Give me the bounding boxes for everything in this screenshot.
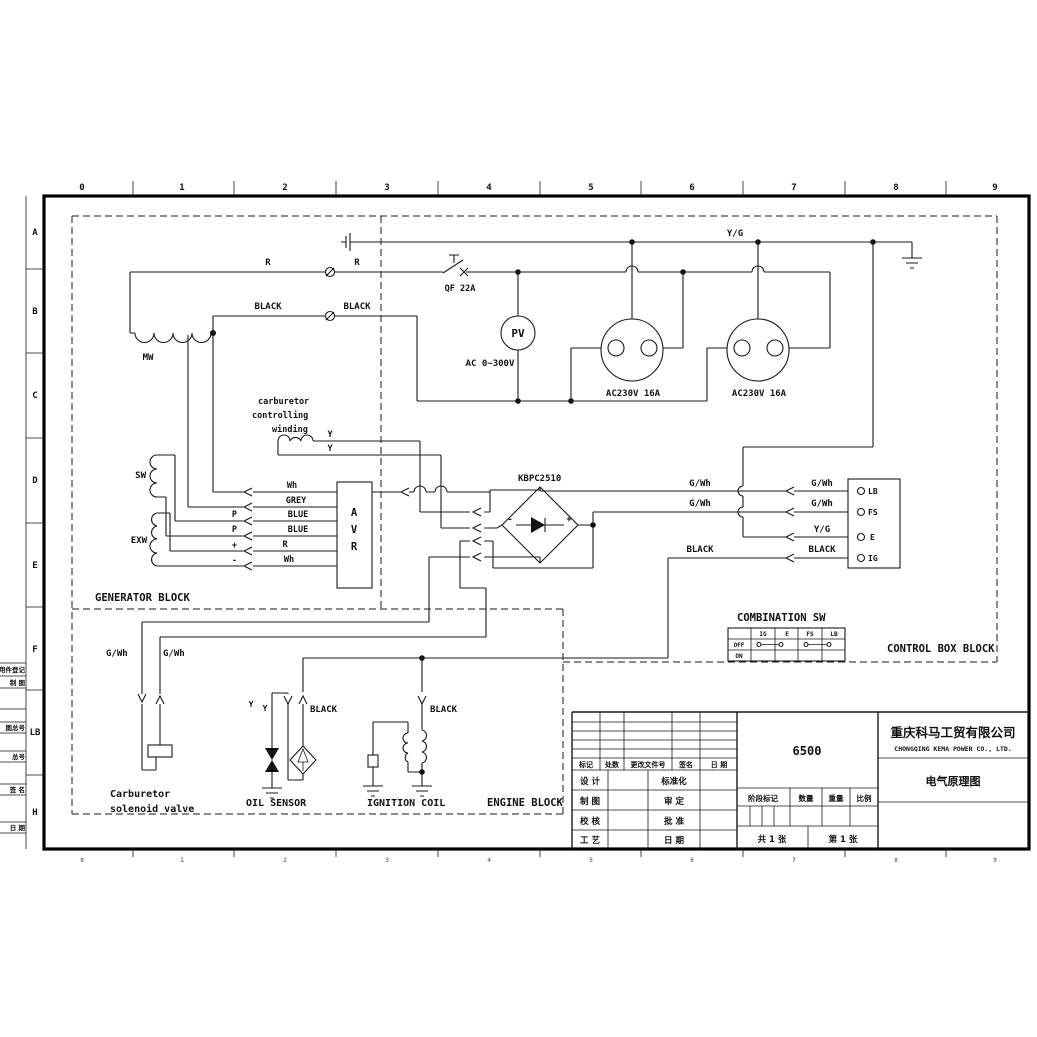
wire-label-gwh-3: G/Wh (689, 499, 711, 509)
wire-label-black-4: BLACK (808, 545, 836, 555)
sw-col-e: E (785, 631, 789, 638)
title-block: 标记 处数 更改文件号 签名 日 期 设 计 制 图 校 核 工 艺 标准化 审… (572, 712, 1029, 849)
connector-chevrons-kbpc (473, 508, 481, 561)
wire-label-gwh-2: G/Wh (811, 479, 833, 489)
avr-wire-wh-2: Wh (284, 555, 294, 565)
avr-wire-blue-2: BLUE (288, 525, 308, 535)
connector-chevron-down (138, 694, 146, 702)
wire-label-y-oil2: Y (263, 704, 268, 713)
ruler-top-7: 7 (791, 183, 796, 193)
avr-wire-wh-1: Wh (287, 481, 297, 491)
rev-header-1: 标记 (578, 760, 593, 769)
sheet-number: 第 1 张 (829, 834, 858, 845)
wire-label-black-oil: BLACK (310, 705, 338, 715)
combination-sw-table: IG E FS LB OFF ON (728, 628, 845, 661)
avr-term-minus: - (232, 556, 237, 566)
drawing-title: 电气原理图 (926, 774, 981, 788)
ruler-left-d: D (32, 476, 38, 486)
terminal-e: E (870, 533, 875, 542)
outlet-1 (601, 242, 663, 381)
wiring-top-bus (350, 239, 922, 268)
avr-term-p1: P (232, 510, 237, 520)
avr-term-p2: P (232, 525, 237, 535)
connector-chevrons-control (786, 487, 794, 562)
ruler-top-5: 5 (588, 183, 593, 193)
ruler-bottom-4: 4 (487, 857, 491, 864)
ruler-bottom-1: 1 (180, 857, 184, 864)
pv-range-label: AC 0~300V (466, 359, 515, 369)
ruler-bottom-8: 8 (894, 857, 898, 864)
wiring-live-line (130, 255, 830, 348)
margin-label-4: 总号 (12, 752, 26, 761)
ruler-left-a: A (32, 228, 38, 238)
avr-wires (188, 488, 337, 570)
oil-sensor (262, 658, 316, 798)
sign-row4-col1: 工 艺 (580, 835, 600, 846)
generator-block-label: GENERATOR BLOCK (95, 592, 191, 604)
sign-row1-col2: 标准化 (660, 776, 687, 787)
wire-label-black-2: BLACK (343, 302, 371, 312)
carb-winding-line1: carburetor (258, 397, 309, 407)
avr-output-wire (372, 486, 490, 496)
margin-label-2: 制 图 (10, 678, 26, 687)
breaker-qf-icon (443, 255, 468, 276)
margin-label-5: 签 名 (9, 785, 25, 794)
avr-box: A V R (337, 482, 372, 588)
schematic-page: 0 1 2 3 4 5 6 7 8 9 0 1 2 3 4 5 6 7 8 9 … (0, 0, 1037, 1037)
stage-header-2: 数量 (799, 793, 814, 803)
ruler-top-8: 8 (893, 183, 898, 193)
sheets-total: 共 1 张 (758, 834, 787, 845)
avr-wire-blue-1: BLUE (288, 510, 308, 520)
wire-label-black-3: BLACK (686, 545, 714, 555)
ignition-coil (363, 658, 432, 796)
model-number: 6500 (793, 744, 822, 758)
sw-winding (150, 455, 243, 536)
terminal-fs: FS (868, 508, 878, 517)
sign-row4-col2: 日 期 (664, 835, 684, 846)
connector-chevron-up (156, 696, 164, 704)
engine-block-label: ENGINE BLOCK (487, 797, 564, 809)
sw-col-ig: IG (759, 631, 767, 638)
ruler-left-c: C (32, 391, 37, 401)
ruler-top-1: 1 (179, 183, 184, 193)
sign-row3-col1: 校 核 (580, 816, 600, 827)
ruler-left-f: F (32, 645, 37, 655)
ruler-top-0: 0 (79, 183, 84, 193)
sw-row-off: OFF (734, 642, 745, 649)
kbpc-label: KBPC2510 (518, 474, 561, 484)
rev-header-2: 处数 (604, 760, 620, 769)
wire-label-gwh-eng2: G/Wh (163, 649, 185, 659)
spark-plug-icon (368, 755, 378, 767)
combination-sw-title: COMBINATION SW (737, 612, 826, 624)
wire-label-gwh-1: G/Wh (689, 479, 711, 489)
sign-row2-col1: 制 图 (580, 796, 600, 807)
ruler-bottom-9: 9 (993, 857, 997, 864)
ignition-coil-label: IGNITION COIL (367, 798, 445, 809)
ruler-left-e: E (32, 561, 37, 571)
breaker-label: QF 22A (445, 284, 476, 294)
schematic-canvas: 0 1 2 3 4 5 6 7 8 9 0 1 2 3 4 5 6 7 8 9 … (0, 0, 1037, 1037)
wire-label-yg-e: Y/G (814, 525, 830, 535)
diode-icon (265, 760, 279, 772)
ruler-left-b: B (32, 307, 38, 317)
wire-label-gwh-4: G/Wh (811, 499, 833, 509)
company-name-en: CHONGQING KEMA POWER CO., LTD. (894, 745, 1011, 753)
sw-col-fs: FS (806, 631, 814, 638)
wire-label-black-ign: BLACK (430, 705, 458, 715)
sw-row-on: ON (735, 653, 743, 660)
avr-letter-v: V (351, 524, 358, 536)
terminal-lb: LB (868, 487, 878, 496)
avr-letter-r: R (351, 541, 358, 553)
wire-label-gwh-eng1: G/Wh (106, 649, 128, 659)
solenoid-valve (138, 622, 172, 770)
ruler-left-h: H (32, 808, 37, 818)
terminal-box: LB FS E IG (848, 479, 900, 568)
connector-chevron (401, 488, 409, 496)
control-box-block-label: CONTROL BOX BLOCK (887, 643, 995, 655)
ruler-top-9: 9 (992, 183, 997, 193)
connector-chevrons-avr (244, 488, 252, 570)
sign-row3-col2: 批 准 (664, 816, 684, 827)
company-name-cn: 重庆科马工贸有限公司 (890, 725, 1015, 740)
stage-header-4: 比例 (857, 793, 872, 803)
carb-winding-line2: controlling (252, 410, 308, 421)
ruler-bottom-6: 6 (690, 857, 694, 864)
ruler-top-4: 4 (486, 183, 492, 193)
exw-label: EXW (131, 536, 148, 546)
mw-label: MW (143, 353, 154, 363)
margin-label-6: 日 期 (10, 823, 26, 832)
ruler-bottom-numbers: 0 1 2 3 4 5 6 7 8 9 (80, 857, 997, 864)
wire-label-r-2: R (354, 258, 360, 268)
sw-col-lb: LB (830, 631, 838, 638)
sign-row1-col1: 设 计 (580, 776, 600, 787)
ruler-top-6: 6 (689, 183, 694, 193)
stage-header-3: 重量 (829, 793, 844, 803)
solenoid-label-2: solenoid valve (110, 803, 194, 815)
avr-letter-a: A (351, 507, 358, 519)
wire-label-yg-top: Y/G (727, 229, 743, 239)
margin-field-labels: 用件登记 制 图 图总号 总号 签 名 日 期 (0, 665, 26, 832)
ruler-bottom-5: 5 (589, 857, 593, 864)
margin-label-3: 图总号 (6, 723, 26, 732)
wire-label-black-1: BLACK (254, 302, 282, 312)
terminal-ig: IG (868, 554, 878, 563)
rev-header-3: 更改文件号 (631, 760, 666, 769)
rev-header-5: 日 期 (711, 760, 727, 769)
kbpc-plus: + (566, 515, 572, 525)
rev-header-4: 签名 (678, 760, 693, 769)
margin-label-1: 用件登记 (0, 665, 26, 674)
avr-term-plus: + (232, 541, 237, 551)
sw-label: SW (135, 471, 146, 481)
avr-wire-r: R (282, 540, 288, 550)
earth-ground-icon (902, 242, 922, 268)
top-ground-left (341, 233, 350, 251)
ruler-bottom-2: 2 (283, 857, 287, 864)
oil-sensor-label: OIL SENSOR (246, 798, 307, 809)
connector-chevron-up (299, 696, 307, 704)
sign-row2-col2: 审 定 (664, 796, 684, 807)
ruler-top-3: 3 (384, 183, 389, 193)
outlet-2 (727, 242, 789, 381)
diode-icon (265, 748, 279, 760)
ruler-top-2: 2 (282, 183, 287, 193)
connector-chevron-down (284, 696, 292, 704)
ruler-bottom-3: 3 (385, 857, 389, 864)
outlet-1-label: AC230V 16A (606, 389, 661, 399)
ruler-top-numbers: 0 1 2 3 4 5 6 7 8 9 (79, 183, 997, 193)
carb-winding-line3: winding (272, 424, 308, 435)
wire-label-y-1: Y (327, 430, 333, 440)
kbpc-minus: - (507, 515, 512, 525)
wire-label-r-1: R (265, 258, 271, 268)
ruler-left-g: LB (30, 728, 41, 738)
avr-wire-grey: GREY (286, 496, 307, 506)
stage-header-1: 阶段标记 (748, 793, 778, 803)
kbpc-rectifier: - + (502, 487, 578, 563)
connector-chevron-down (418, 696, 426, 704)
outlet-2-label: AC230V 16A (732, 389, 787, 399)
solenoid-label-1: Carburetor (110, 789, 170, 800)
ruler-bottom-0: 0 (80, 857, 84, 864)
wire-label-y-oil1: Y (249, 700, 254, 709)
pv-meter-label: PV (511, 327, 525, 340)
ruler-bottom-7: 7 (792, 857, 796, 864)
pv-meter: PV (501, 272, 535, 401)
wire-label-y-2: Y (327, 444, 333, 454)
